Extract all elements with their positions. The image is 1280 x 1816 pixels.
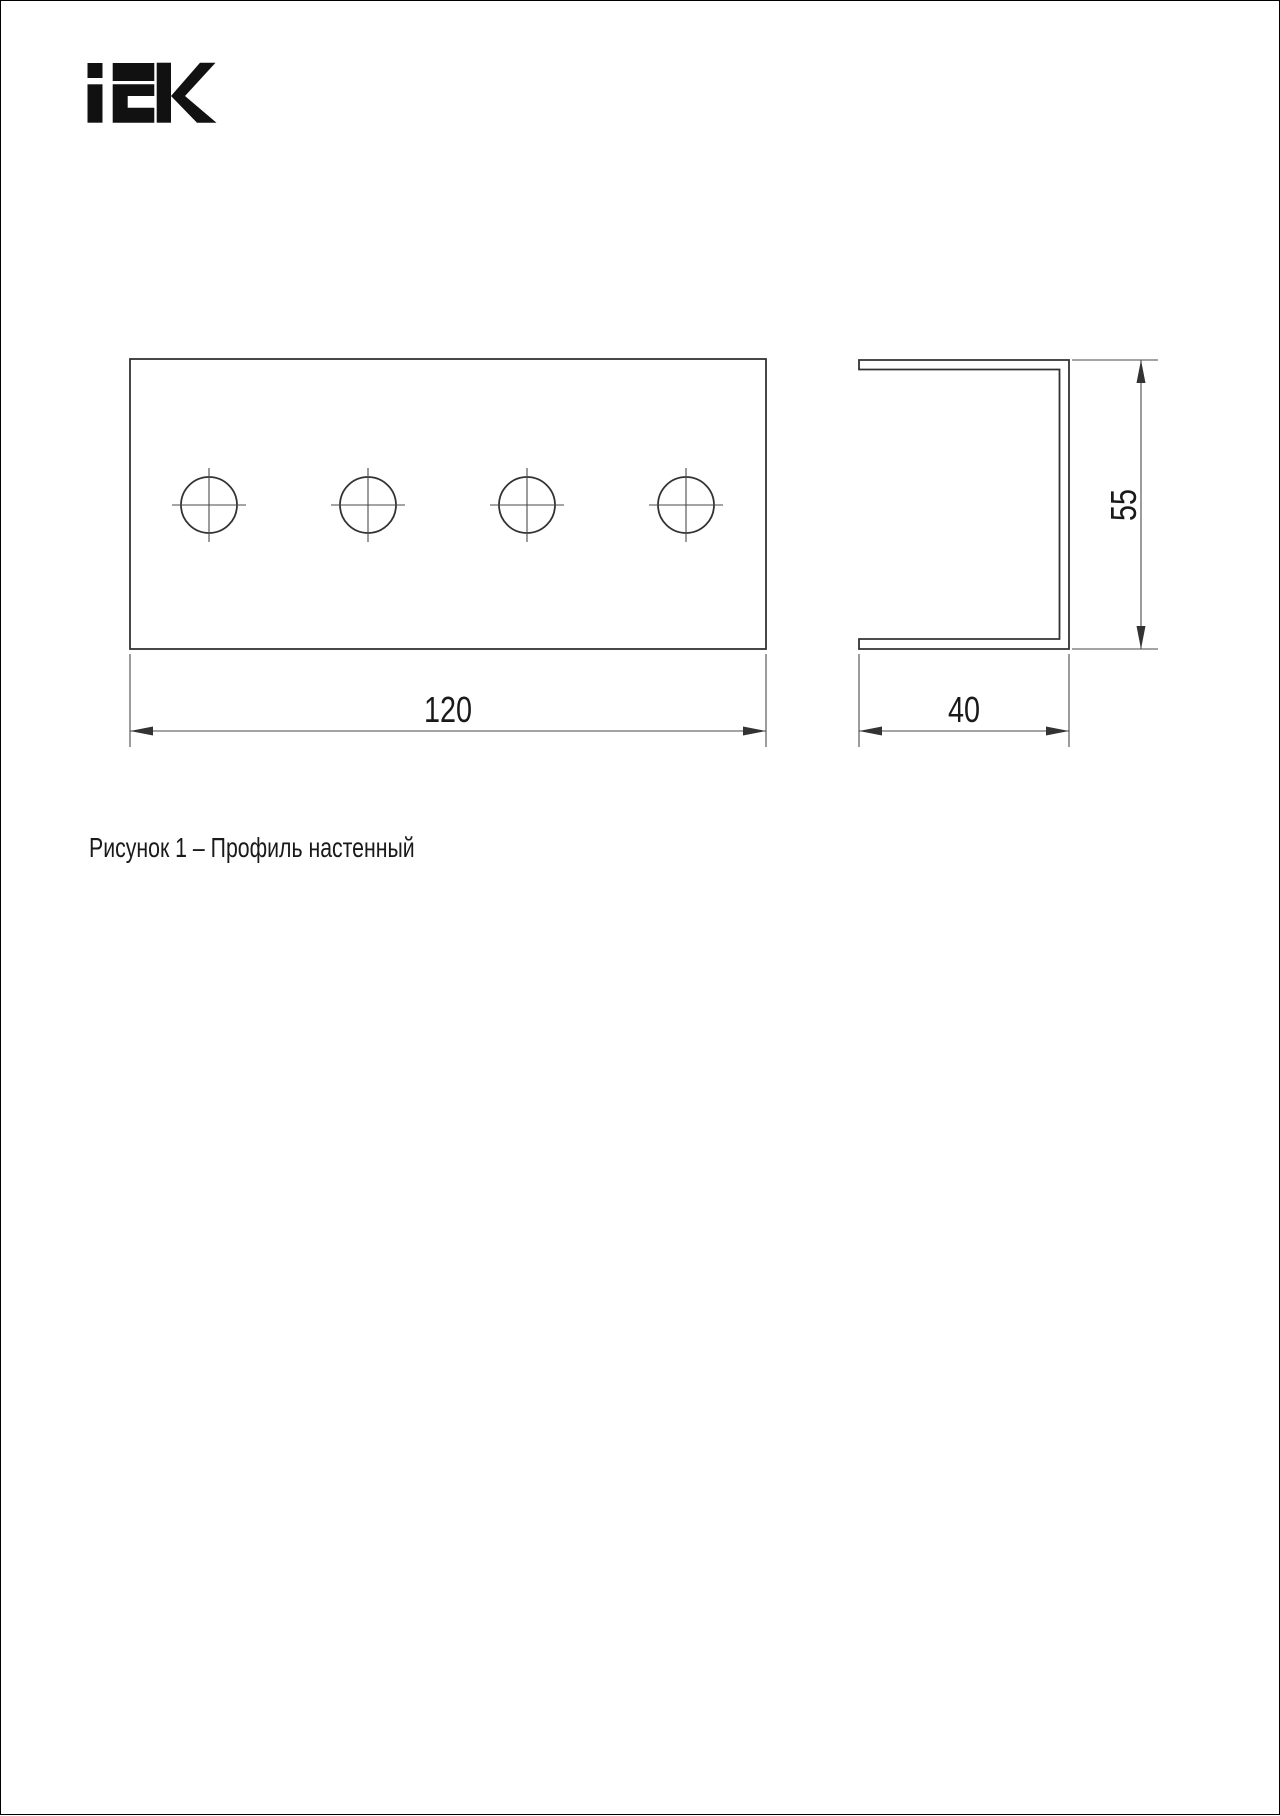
arrowhead-right bbox=[743, 727, 766, 736]
arrowhead-right bbox=[1046, 727, 1069, 736]
drawing-page: { "logo": { "text": "IEK" }, "figure": {… bbox=[0, 0, 1280, 1815]
front-view-outline bbox=[130, 359, 766, 649]
hole-4 bbox=[649, 468, 723, 542]
side-view-outline bbox=[859, 360, 1069, 649]
side-view bbox=[859, 360, 1158, 747]
figure-caption: Рисунок 1 – Профиль настенный bbox=[89, 833, 415, 864]
hole-2 bbox=[331, 468, 405, 542]
dimension-label-width-front: 120 bbox=[424, 692, 472, 728]
arrowhead-bottom bbox=[1137, 626, 1146, 649]
dimension-label-width-side: 40 bbox=[948, 692, 980, 728]
arrowhead-top bbox=[1137, 360, 1146, 383]
hole-3 bbox=[490, 468, 564, 542]
hole-1 bbox=[172, 468, 246, 542]
arrowhead-left bbox=[859, 727, 882, 736]
dimension-label-height-side: 55 bbox=[1106, 489, 1142, 521]
arrowhead-left bbox=[130, 727, 153, 736]
technical-drawing bbox=[1, 1, 1280, 1816]
